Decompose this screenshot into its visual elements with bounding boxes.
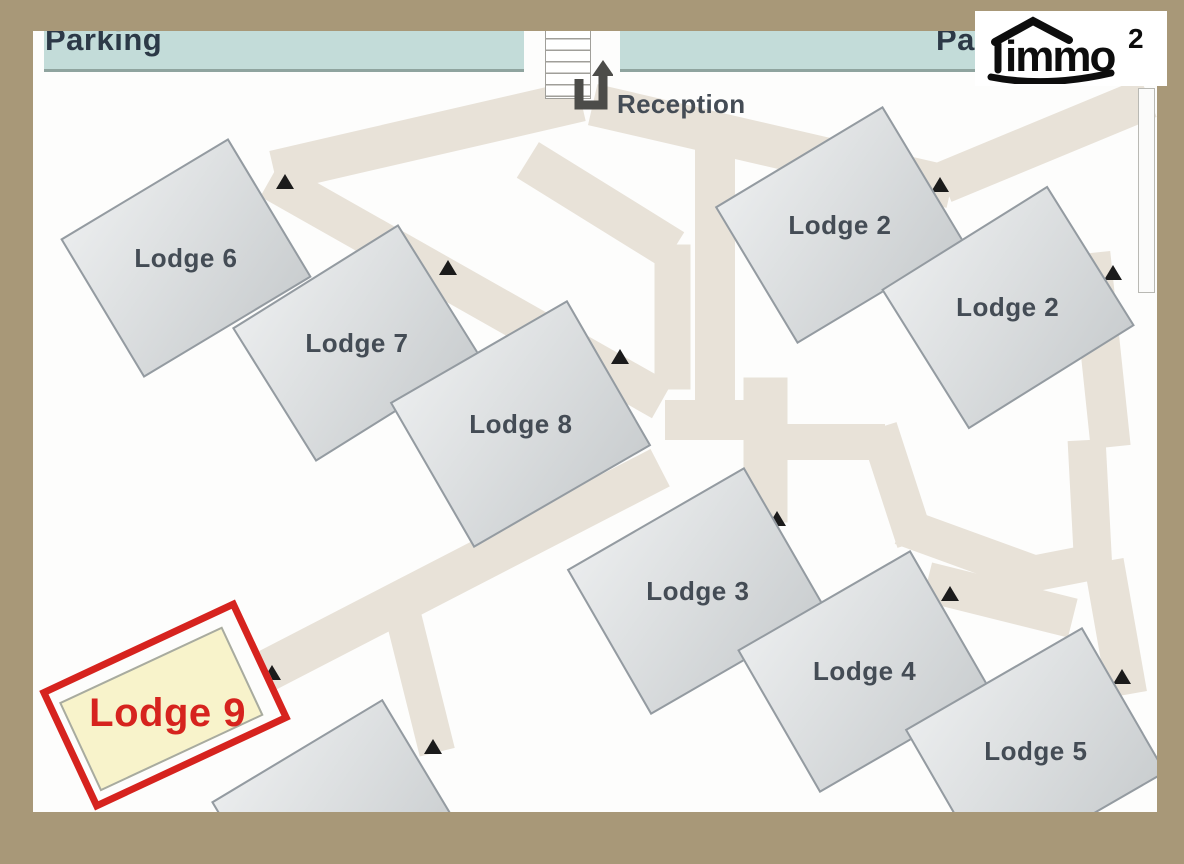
- walkway-segment: [935, 78, 1156, 202]
- brand-logo: immo 2: [975, 11, 1167, 86]
- path-corridor: [1138, 88, 1155, 293]
- lodge-9-label: Lodge 9: [89, 691, 246, 736]
- lodge-entrance-triangle-icon: [1104, 265, 1122, 280]
- lodge-label: Lodge 7: [305, 328, 408, 359]
- lodge-entrance-triangle-icon: [941, 586, 959, 601]
- lodge-entrance-triangle-icon: [1113, 669, 1131, 684]
- site-map: Lodge 6 Lodge 7 Lodge 8 Lodge 2 Lodge 2 …: [33, 31, 1157, 812]
- immo2-logo-icon: immo 2: [981, 14, 1161, 84]
- lodge-label: Lodge 8: [468, 409, 571, 440]
- lodge-entrance-triangle-icon: [276, 174, 294, 189]
- lodge-entrance-triangle-icon: [424, 739, 442, 754]
- svg-text:2: 2: [1128, 23, 1144, 54]
- reception-arrow-icon: [569, 58, 613, 115]
- lodge-entrance-triangle-icon: [439, 260, 457, 275]
- lodge-label: Lodge 4: [813, 656, 916, 687]
- screenshot-root: { "logo": { "brand": "immo", "exponent":…: [0, 0, 1184, 864]
- lodge-label: Lodge 3: [645, 576, 748, 607]
- reception-label: Reception: [617, 89, 745, 120]
- walkway-segment: [695, 125, 735, 415]
- parking-left-label: Parking: [45, 31, 162, 58]
- lodge-label: Lodge 2: [956, 292, 1059, 323]
- lodge-label: Lodge 6: [134, 243, 237, 274]
- lodge-label: Lodge 2: [788, 210, 891, 241]
- lodge-label: Lodge 5: [983, 736, 1086, 767]
- lodge-entrance-triangle-icon: [611, 349, 629, 364]
- walkway-segment: [654, 245, 690, 390]
